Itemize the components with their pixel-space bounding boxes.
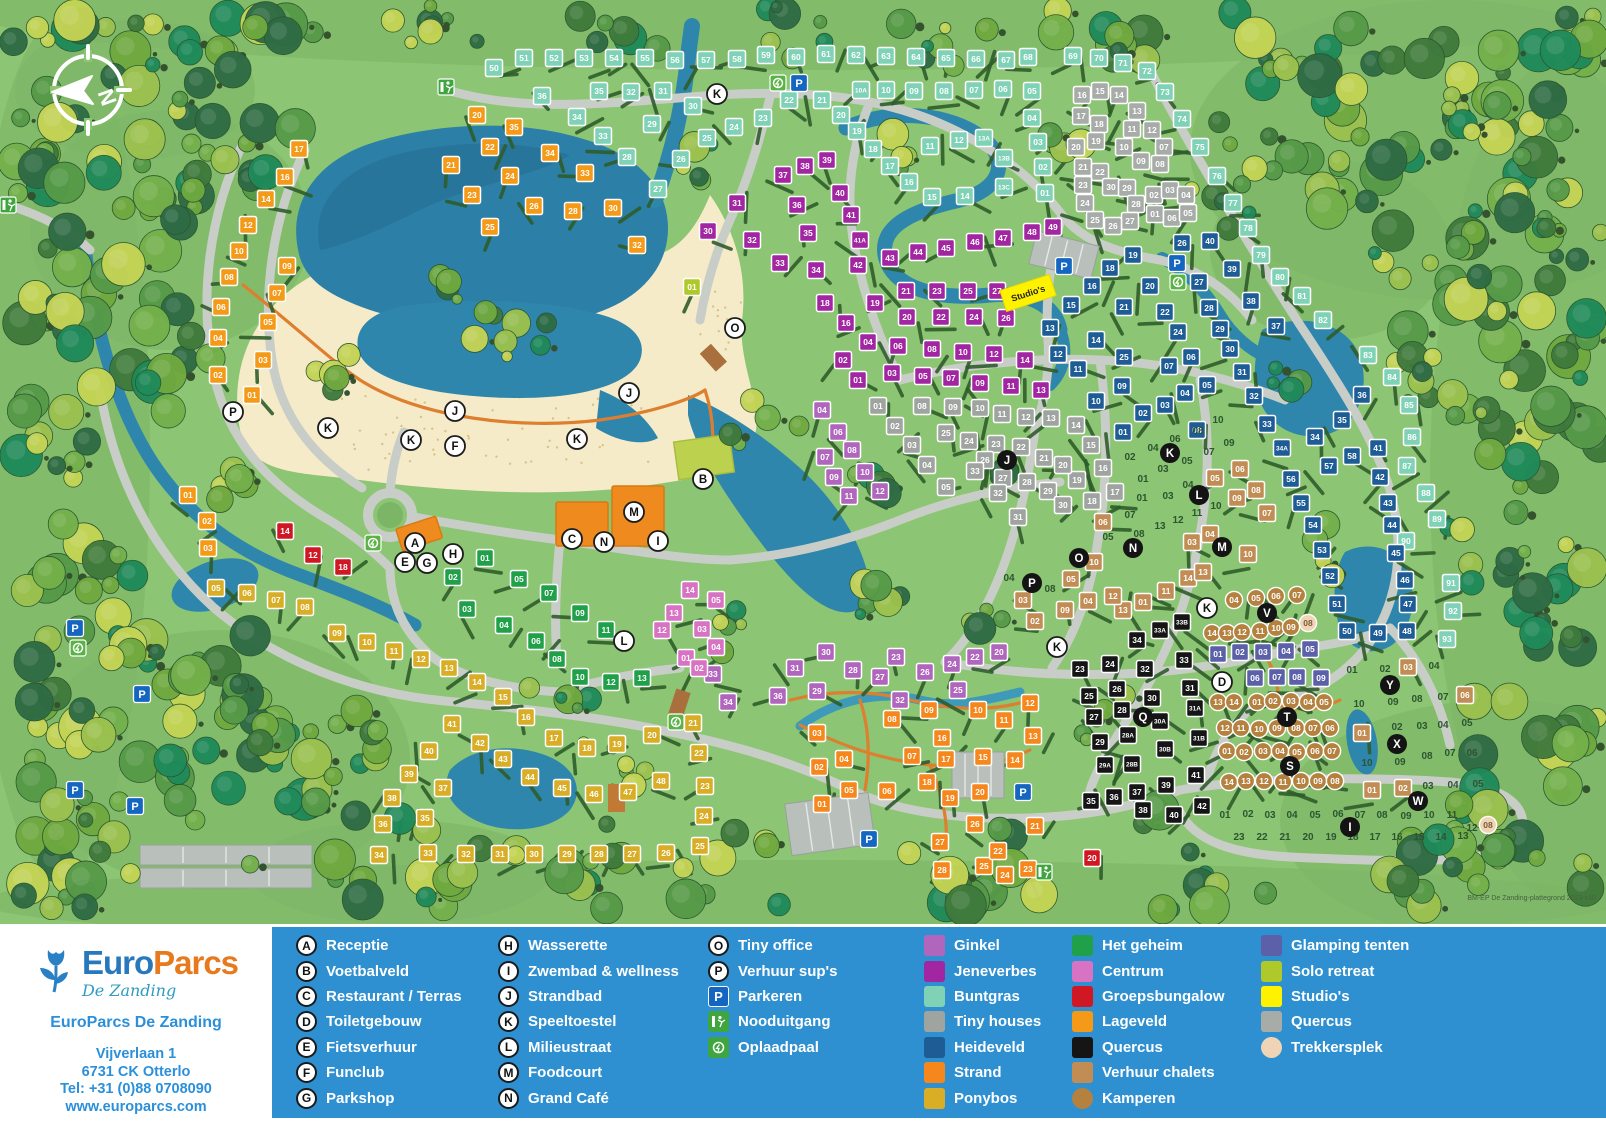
svg-text:37: 37 [1132, 787, 1142, 797]
plot-lageveld-01: 01 [244, 387, 261, 404]
plot-buntgras-53: 53 [576, 50, 593, 67]
plot-tiny-houses-14: 14 [1068, 417, 1085, 434]
plot-ginkel-22: 22 [967, 649, 984, 666]
plot-tiny-houses-15: 15 [1083, 437, 1100, 454]
svg-text:19: 19 [1072, 475, 1082, 485]
plot-buntgras-30: 30 [685, 98, 702, 115]
plot-buntgras-50: 50 [486, 60, 503, 77]
parking-icon: P [127, 798, 144, 815]
svg-text:75: 75 [1195, 142, 1205, 152]
legend-item-ponybos: Ponybos [924, 1085, 1041, 1110]
svg-text:01: 01 [681, 653, 691, 663]
plot-kamperen-04: 04 [1225, 591, 1242, 608]
svg-text:09: 09 [1060, 605, 1070, 615]
legend-item-grand-caf-: NGrand Café [498, 1085, 679, 1110]
plot-kampeerplaats-08: 08 [1421, 751, 1433, 762]
plot-strand-04: 04 [836, 751, 853, 768]
plot-buntgras-84: 84 [1384, 369, 1401, 386]
svg-text:01: 01 [1137, 474, 1149, 485]
plot-ponybos-12: 12 [413, 651, 430, 668]
plot-buntgras-81: 81 [1294, 288, 1311, 305]
legend-item-heideveld: Heideveld [924, 1035, 1041, 1060]
legend-letter-D-icon: D [296, 1011, 317, 1032]
svg-text:03: 03 [1165, 185, 1175, 195]
plot-kampeerplaats-09: 09 [1387, 697, 1399, 708]
svg-text:18: 18 [820, 298, 830, 308]
plot-jeneverbes-21: 21 [898, 283, 915, 300]
legend-letter-L-icon: L [498, 1037, 519, 1058]
svg-text:15: 15 [978, 752, 988, 762]
svg-text:44: 44 [1387, 520, 1397, 530]
plot-verhuur-chalets-06: 06 [1232, 461, 1249, 478]
plot-quercus-07: 07 [1156, 139, 1173, 156]
plot-tiny-houses-01: 01 [870, 398, 887, 415]
plot-buntgras-34: 34 [569, 109, 586, 126]
svg-text:24: 24 [1105, 659, 1115, 669]
svg-text:W: W [1413, 796, 1424, 808]
svg-text:21: 21 [446, 160, 456, 170]
plot-heideveld-18: 18 [1102, 260, 1119, 277]
svg-text:20: 20 [1058, 460, 1068, 470]
plot-quercus-10: 10 [1116, 139, 1133, 156]
plot-heideveld-45: 45 [1388, 545, 1405, 562]
svg-text:06: 06 [1332, 809, 1344, 820]
svg-text:09: 09 [1400, 811, 1412, 822]
svg-text:36: 36 [378, 819, 388, 829]
plot-verhuur-chalets-01: 01 [1354, 725, 1371, 742]
plot-strand-12: 12 [1022, 695, 1039, 712]
svg-text:08: 08 [1251, 485, 1261, 495]
plot-kamperen-12: 12 [1233, 623, 1250, 640]
svg-text:35: 35 [1086, 796, 1096, 806]
plot-kampeerplaats-14: 14 [1435, 832, 1447, 843]
parking-icon: P [791, 75, 808, 92]
plot-het-geheim-06: 06 [528, 633, 545, 650]
svg-text:21: 21 [1119, 302, 1129, 312]
svg-text:34: 34 [1132, 635, 1142, 645]
svg-text:53: 53 [1317, 545, 1327, 555]
plot-kampeerplaats-15: 15 [1413, 832, 1425, 843]
plot-buntgras-85: 85 [1401, 397, 1418, 414]
svg-text:39: 39 [404, 769, 414, 779]
svg-text:30: 30 [1225, 344, 1235, 354]
svg-text:30: 30 [1106, 182, 1116, 192]
plot-kamperen-10: 10 [1250, 720, 1267, 737]
plot-buntgras-79: 79 [1253, 247, 1270, 264]
svg-text:26: 26 [529, 201, 539, 211]
svg-text:29A: 29A [1099, 763, 1111, 770]
plot-buntgras-15: 15 [924, 189, 941, 206]
plot-buntgras-63: 63 [878, 48, 895, 65]
plot-tiny-houses-29: 29 [1040, 483, 1057, 500]
legend-item-foodcourt: MFoodcourt [498, 1060, 679, 1085]
svg-text:45: 45 [557, 783, 567, 793]
svg-text:48: 48 [656, 776, 666, 786]
plot-quercus-04: 04 [1178, 187, 1195, 204]
svg-text:27: 27 [1125, 216, 1135, 226]
plot-ginkel-08: 08 [844, 442, 861, 459]
legend-letter-B-icon: B [296, 961, 317, 982]
plot-kampeerplaats-04: 04 [1147, 443, 1159, 454]
plot-centrum-02: 02 [691, 660, 708, 677]
plot-heideveld-34A: 34A [1274, 440, 1291, 457]
plot-tiny-houses-32: 32 [990, 485, 1007, 502]
svg-text:04: 04 [1275, 746, 1285, 756]
svg-text:05: 05 [1461, 718, 1473, 729]
legend-item-trekkersplek: Trekkersplek [1261, 1035, 1409, 1060]
svg-text:78: 78 [1243, 223, 1253, 233]
svg-text:07: 07 [1262, 508, 1272, 518]
plot-quercus-30B: 30B [1157, 741, 1174, 758]
plot-kampeerplaats-03: 03 [1162, 491, 1174, 502]
svg-text:06: 06 [1098, 517, 1108, 527]
plot-buntgras-13C: 13C [996, 179, 1013, 196]
plot-buntgras-77: 77 [1225, 195, 1242, 212]
svg-text:32: 32 [626, 87, 636, 97]
svg-text:08: 08 [552, 654, 562, 664]
plot-heideveld-24: 24 [1170, 324, 1187, 341]
plot-quercus-42: 42 [1194, 798, 1211, 815]
plot-kampeerplaats-01: 01 [1137, 474, 1149, 485]
plot-quercus-21: 21 [1075, 159, 1092, 176]
facility-marker-k: K [318, 418, 338, 438]
svg-text:03: 03 [1162, 491, 1174, 502]
plot-kamperen-12: 12 [1216, 719, 1233, 736]
plot-jeneverbes-08: 08 [924, 341, 941, 358]
svg-text:29: 29 [647, 119, 657, 129]
plot-lageveld-22: 22 [482, 139, 499, 156]
plot-kampeerplaats-08: 08 [1411, 694, 1423, 705]
svg-text:22: 22 [993, 846, 1003, 856]
svg-text:10: 10 [234, 246, 244, 256]
svg-text:86: 86 [1407, 432, 1417, 442]
svg-text:42: 42 [853, 260, 863, 270]
svg-text:07: 07 [271, 595, 281, 605]
plot-heideveld-33: 33 [1259, 416, 1276, 433]
svg-text:08: 08 [1421, 751, 1433, 762]
legend-item-strandbad: JStrandbad [498, 984, 679, 1009]
svg-text:07: 07 [820, 452, 830, 462]
plot-ginkel-11: 11 [841, 488, 858, 505]
svg-text:28: 28 [622, 152, 632, 162]
plot-buntgras-13B: 13B [996, 150, 1013, 167]
plot-quercus-33B: 33B [1174, 614, 1191, 631]
svg-text:31: 31 [495, 849, 505, 859]
svg-text:32: 32 [1140, 664, 1150, 674]
svg-text:30: 30 [608, 203, 618, 213]
svg-text:07: 07 [272, 288, 282, 298]
svg-text:34: 34 [572, 112, 582, 122]
legend-item-kamperen: Kamperen [1072, 1085, 1225, 1110]
svg-text:12: 12 [875, 486, 885, 496]
svg-text:03: 03 [1157, 464, 1169, 475]
plot-quercus-38: 38 [1135, 802, 1152, 819]
plot-kampeerplaats-05: 05 [1461, 718, 1473, 729]
svg-text:11: 11 [926, 141, 935, 151]
svg-text:12: 12 [243, 220, 253, 230]
plot-jeneverbes-49: 49 [1045, 219, 1062, 236]
plot-jeneverbes-34: 34 [808, 262, 825, 279]
plot-kamperen-10: 10 [1292, 772, 1309, 789]
plot-centrum-04: 04 [708, 639, 725, 656]
plot-kamperen-06: 06 [1321, 719, 1338, 736]
legend-swatch [924, 1088, 945, 1109]
svg-text:31: 31 [790, 663, 800, 673]
charging-station-icon [770, 75, 786, 91]
plot-quercus-01: 01 [1147, 206, 1164, 223]
svg-text:10: 10 [575, 672, 585, 682]
plot-lageveld-20: 20 [469, 107, 486, 124]
svg-text:40: 40 [1169, 810, 1179, 820]
facility-marker-v: V [1257, 603, 1277, 623]
svg-text:70: 70 [1094, 53, 1104, 63]
plot-kampeerplaats-10: 10 [1353, 699, 1365, 710]
legend-swatch [924, 961, 945, 982]
svg-text:04: 04 [1286, 810, 1298, 821]
svg-text:64: 64 [911, 52, 921, 62]
plot-ponybos-45: 45 [554, 780, 571, 797]
svg-text:L: L [620, 636, 627, 648]
facility-marker-y: Y [1380, 675, 1400, 695]
plot-buntgras-02: 02 [1035, 159, 1052, 176]
plot-jeneverbes-23: 23 [929, 283, 946, 300]
plot-lageveld-23: 23 [464, 187, 481, 204]
plot-tiny-houses-10: 10 [972, 400, 989, 417]
svg-text:31: 31 [658, 86, 668, 96]
plot-kampeerplaats-22: 22 [1256, 832, 1268, 843]
svg-text:09: 09 [1387, 697, 1399, 708]
plot-buntgras-89: 89 [1429, 511, 1446, 528]
svg-text:08: 08 [1303, 618, 1313, 628]
svg-text:03: 03 [907, 440, 917, 450]
svg-text:11: 11 [1007, 381, 1016, 391]
svg-text:69: 69 [1068, 51, 1078, 61]
svg-text:19: 19 [1128, 250, 1138, 260]
plot-ginkel-20: 20 [991, 644, 1008, 661]
plot-strand-08: 08 [884, 711, 901, 728]
svg-text:36: 36 [537, 91, 547, 101]
svg-text:10: 10 [362, 637, 372, 647]
facility-marker-j: J [619, 383, 639, 403]
plot-verhuur-chalets-01: 01 [1135, 594, 1152, 611]
plot-ponybos-28: 28 [591, 846, 608, 863]
plot-lageveld-08: 08 [221, 269, 238, 286]
plot-quercus-30: 30 [1144, 690, 1161, 707]
plot-ponybos-14: 14 [469, 674, 486, 691]
plot-kamperen-07: 07 [1323, 742, 1340, 759]
svg-text:08: 08 [847, 445, 857, 455]
plot-buntgras-21: 21 [814, 92, 831, 109]
svg-text:E: E [401, 557, 409, 569]
svg-text:14: 14 [1224, 777, 1234, 787]
plot-quercus-27: 27 [1086, 709, 1103, 726]
svg-text:07: 07 [1272, 672, 1282, 682]
plot-kampeerplaats-08: 08 [1192, 426, 1204, 437]
plot-buntgras-05: 05 [1024, 83, 1041, 100]
svg-text:05: 05 [1210, 473, 1220, 483]
plot-kampeerplaats-05: 05 [1472, 779, 1484, 790]
plot-kampeerplaats-12: 12 [1172, 515, 1184, 526]
plot-strand-21: 21 [1027, 818, 1044, 835]
svg-text:01: 01 [1138, 597, 1148, 607]
svg-text:04: 04 [1281, 646, 1291, 656]
plot-kampeerplaats-02: 02 [1242, 809, 1254, 820]
svg-text:06: 06 [1250, 673, 1260, 683]
svg-text:01: 01 [1118, 427, 1128, 437]
svg-text:58: 58 [1347, 451, 1357, 461]
svg-text:04: 04 [1447, 780, 1459, 791]
facility-marker-m: M [1212, 537, 1232, 557]
plot-heideveld-29: 29 [1212, 321, 1229, 338]
svg-text:20: 20 [472, 110, 482, 120]
legend-swatch [1261, 961, 1282, 982]
svg-text:41: 41 [1373, 443, 1383, 453]
plot-kampeerplaats-09: 09 [1394, 757, 1406, 768]
svg-text:10: 10 [1361, 758, 1373, 769]
svg-text:73: 73 [1160, 87, 1170, 97]
svg-text:34: 34 [723, 697, 733, 707]
plot-ponybos-32: 32 [458, 846, 475, 863]
svg-text:G: G [423, 558, 432, 570]
svg-text:04: 04 [839, 754, 849, 764]
plot-ponybos-30: 30 [526, 846, 543, 863]
legend-letter-K-icon: K [498, 1011, 519, 1032]
svg-text:34: 34 [811, 265, 821, 275]
plot-kampeerplaats-09: 09 [1223, 438, 1235, 449]
svg-text:P: P [1028, 578, 1036, 590]
legend-swatch [1072, 1088, 1093, 1109]
plot-buntgras-35: 35 [591, 83, 608, 100]
plot-verhuur-chalets-10: 10 [1240, 546, 1257, 563]
facility-marker-j: J [445, 401, 465, 421]
plot-quercus-08: 08 [1152, 156, 1169, 173]
plot-heideveld-57: 57 [1321, 458, 1338, 475]
legend-swatch [1261, 1037, 1282, 1058]
plot-ginkel-28: 28 [845, 662, 862, 679]
plot-kamperen-03: 03 [1254, 742, 1271, 759]
plot-jeneverbes-25: 25 [960, 283, 977, 300]
plot-ginkel-10: 10 [857, 464, 874, 481]
plot-quercus-06: 06 [1164, 210, 1181, 227]
svg-text:B: B [699, 474, 707, 486]
plot-lageveld-32: 32 [629, 237, 646, 254]
svg-text:56: 56 [1286, 474, 1296, 484]
svg-text:45: 45 [1391, 548, 1401, 558]
legend-item-strand: Strand [924, 1060, 1041, 1085]
svg-text:20: 20 [902, 312, 912, 322]
plot-kampeerplaats-04: 04 [1286, 810, 1298, 821]
svg-text:12: 12 [1025, 698, 1035, 708]
facility-marker-k: K [1160, 443, 1180, 463]
svg-text:09: 09 [282, 261, 292, 271]
svg-text:16: 16 [521, 712, 531, 722]
svg-text:08: 08 [887, 714, 897, 724]
legend-swatch [1072, 1062, 1093, 1083]
svg-text:38: 38 [1138, 805, 1148, 815]
plot-jeneverbes-11: 11 [1003, 378, 1020, 395]
plot-het-geheim-10: 10 [572, 669, 589, 686]
plot-buntgras-78: 78 [1240, 220, 1257, 237]
plot-quercus-29: 29 [1092, 734, 1109, 751]
plot-strand-11: 11 [996, 712, 1013, 729]
svg-text:01: 01 [1252, 697, 1262, 707]
svg-text:P: P [795, 78, 802, 90]
plot-jeneverbes-02: 02 [835, 352, 852, 369]
plot-glamping-tenten-02: 02 [1232, 644, 1249, 661]
svg-text:J: J [1004, 455, 1010, 467]
legend-item-zwembad-wellness: IZwembad & wellness [498, 958, 679, 983]
plot-verhuur-chalets-05: 05 [1063, 571, 1080, 588]
svg-text:01: 01 [247, 390, 257, 400]
svg-text:15: 15 [1095, 86, 1105, 96]
svg-text:16: 16 [1391, 832, 1403, 843]
svg-text:28: 28 [937, 865, 947, 875]
svg-text:11: 11 [1447, 810, 1458, 821]
plot-verhuur-chalets-02: 02 [1395, 780, 1412, 797]
plot-buntgras-29: 29 [644, 116, 661, 133]
svg-text:10: 10 [1091, 396, 1101, 406]
svg-text:29: 29 [1122, 183, 1132, 193]
svg-text:13: 13 [1154, 521, 1166, 532]
svg-text:X: X [1393, 739, 1401, 751]
plot-quercus-40: 40 [1166, 807, 1183, 824]
info-panel: EuroParcs De Zanding EuroParcs De Zandin… [0, 924, 272, 1136]
svg-text:35: 35 [594, 86, 604, 96]
plot-kamperen-09: 09 [1282, 618, 1299, 635]
plot-glamping-tenten-05: 05 [1302, 641, 1319, 658]
svg-text:02: 02 [1149, 190, 1159, 200]
plot-strand-13: 13 [1025, 728, 1042, 745]
legend-letter-O-icon: O [708, 935, 729, 956]
svg-text:09: 09 [1316, 673, 1326, 683]
legend-swatch [1072, 1037, 1093, 1058]
svg-text:32: 32 [1249, 391, 1259, 401]
svg-text:42: 42 [475, 738, 485, 748]
svg-text:08: 08 [917, 401, 927, 411]
legend-item-oplaadpaal: Oplaadpaal [708, 1035, 837, 1060]
park-address: Vijverlaan 1 6731 CK Otterlo Tel: +31 (0… [0, 1046, 272, 1117]
plot-jeneverbes-05: 05 [915, 368, 932, 385]
plot-kamperen-02: 02 [1264, 692, 1281, 709]
svg-text:Y: Y [1386, 680, 1394, 692]
svg-text:10: 10 [860, 467, 870, 477]
plot-ginkel-26: 26 [917, 664, 934, 681]
svg-text:54: 54 [1308, 520, 1318, 530]
plot-jeneverbes-32: 32 [744, 232, 761, 249]
facility-marker-a: A [405, 533, 425, 553]
svg-text:34A: 34A [1276, 446, 1288, 453]
plot-buntgras-70: 70 [1091, 50, 1108, 67]
svg-text:02: 02 [1235, 647, 1245, 657]
plot-quercus-16: 16 [1074, 87, 1091, 104]
svg-text:10: 10 [1243, 549, 1253, 559]
svg-text:20: 20 [836, 110, 846, 120]
svg-text:15: 15 [498, 692, 508, 702]
svg-text:34: 34 [1310, 432, 1320, 442]
plot-kamperen-06: 06 [1267, 587, 1284, 604]
svg-text:13: 13 [1222, 628, 1232, 638]
plot-heideveld-22: 22 [1157, 304, 1174, 321]
legend-item-toiletgebouw: DToiletgebouw [296, 1009, 462, 1034]
plot-verhuur-chalets-09: 09 [1229, 490, 1246, 507]
svg-text:30: 30 [1147, 693, 1157, 703]
facility-marker-p: P [1022, 573, 1042, 593]
plot-heideveld-52: 52 [1322, 568, 1339, 585]
legend-item-jeneverbes: Jeneverbes [924, 958, 1041, 983]
plot-kampeerplaats-23: 23 [1233, 832, 1245, 843]
plot-glamping-tenten-06: 06 [1247, 670, 1264, 687]
plot-heideveld-47: 47 [1400, 596, 1417, 613]
